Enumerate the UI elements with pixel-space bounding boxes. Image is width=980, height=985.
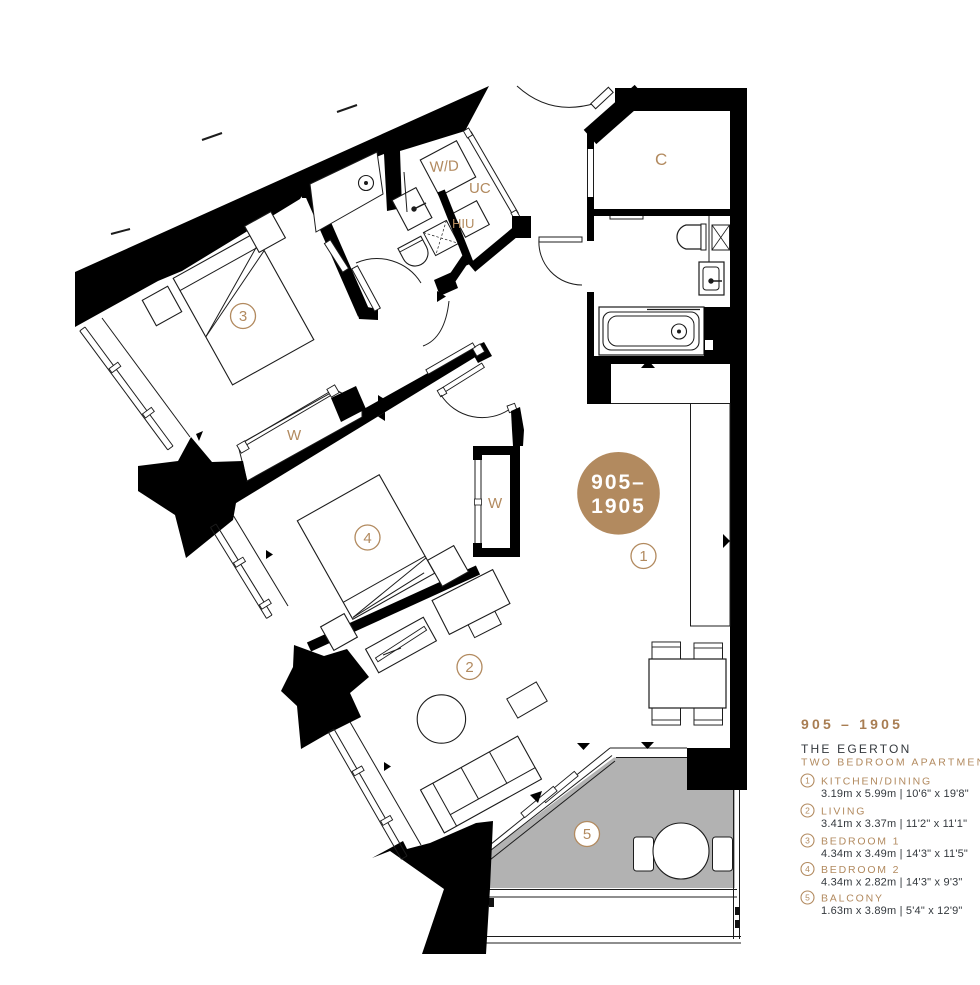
svg-text:4: 4 [363, 530, 371, 547]
svg-text:BALCONY: BALCONY [821, 893, 884, 905]
svg-text:2: 2 [465, 659, 473, 676]
svg-text:2: 2 [805, 806, 810, 816]
svg-text:TWO BEDROOM APARTMENT: TWO BEDROOM APARTMENT [801, 757, 980, 769]
svg-text:KITCHEN/DINING: KITCHEN/DINING [821, 776, 932, 788]
svg-text:W/D: W/D [429, 157, 459, 176]
svg-text:1: 1 [639, 548, 647, 565]
svg-text:LIVING: LIVING [821, 806, 866, 818]
svg-text:BEDROOM 2: BEDROOM 2 [821, 864, 900, 876]
svg-text:5: 5 [805, 893, 810, 903]
svg-text:3: 3 [805, 836, 810, 846]
svg-text:905–: 905– [591, 471, 646, 494]
svg-text:THE EGERTON: THE EGERTON [801, 742, 911, 756]
svg-text:W: W [488, 495, 503, 512]
svg-text:4: 4 [805, 864, 810, 874]
svg-text:4.34m x 2.82m | 14'3" x 9'3": 4.34m x 2.82m | 14'3" x 9'3" [821, 877, 963, 889]
svg-text:4.34m x 3.49m | 14'3" x 11'5: 4.34m x 3.49m | 14'3" x 11'5" [821, 848, 968, 860]
svg-text:3.19m x 5.99m | 10'6" x 19'8: 3.19m x 5.99m | 10'6" x 19'8" [821, 788, 969, 800]
svg-text:UC: UC [469, 180, 491, 197]
svg-text:905 – 1905: 905 – 1905 [801, 716, 903, 732]
svg-text:1: 1 [805, 776, 810, 786]
svg-text:1.63m x 3.89m | 5'4" x 12'9": 1.63m x 3.89m | 5'4" x 12'9" [821, 905, 963, 917]
svg-text:C: C [655, 150, 667, 169]
svg-text:W: W [287, 427, 302, 444]
svg-text:BEDROOM 1: BEDROOM 1 [821, 836, 900, 848]
svg-text:1905: 1905 [591, 495, 646, 518]
svg-text:5: 5 [583, 826, 591, 843]
svg-text:3.41m x 3.37m | 11'2" x 11'1: 3.41m x 3.37m | 11'2" x 11'1" [821, 818, 967, 830]
svg-text:HIU: HIU [452, 216, 474, 231]
svg-text:3: 3 [239, 308, 247, 325]
